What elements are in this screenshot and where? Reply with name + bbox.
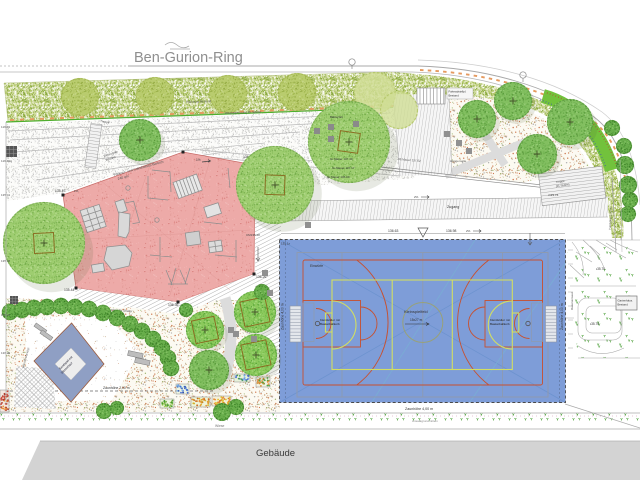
svg-text:CM135.28: CM135.28 [246, 233, 260, 237]
svg-text:Turnhöhe 2,00 m: Turnhöhe 2,00 m [608, 207, 613, 230]
svg-text:Bestand: Bestand [618, 303, 629, 307]
svg-text:135.47: 135.47 [55, 189, 65, 193]
svg-text:Zaunhöhe 4,00 m: Zaunhöhe 4,00 m [281, 303, 285, 330]
svg-text:Wiese: Wiese [215, 424, 225, 428]
svg-text:Ben-Gurion-Ring: Ben-Gurion-Ring [134, 50, 243, 66]
svg-text:Basketballkorb: Basketballkorb [320, 322, 340, 326]
svg-text:Blätterfall: Blätterfall [330, 115, 343, 119]
svg-text:Gr.Mauer 137.17: Gr.Mauer 137.17 [332, 166, 355, 170]
svg-text:Zaunhöhe 4,00 m: Zaunhöhe 4,00 m [560, 303, 564, 330]
svg-text:Zaunhöhe 4,00 m: Zaunhöhe 4,00 m [405, 407, 433, 411]
svg-text:Gr.Mauer 137.40: Gr.Mauer 137.40 [330, 157, 353, 161]
svg-text:Ansaatgrundmitteln: Ansaatgrundmitteln [412, 419, 438, 423]
svg-text:Gebäude: Gebäude [256, 448, 295, 459]
svg-text:Bestand: Bestand [449, 94, 460, 98]
svg-text:15x27 m: 15x27 m [410, 318, 423, 322]
svg-text:Rasenansaat: Rasenansaat [570, 292, 574, 310]
svg-text:Einwürfe: Einwürfe [310, 264, 323, 268]
svg-text:Hängematte: Hängematte [450, 159, 467, 163]
svg-text:▪35.76: ▪35.76 [596, 267, 605, 271]
svg-text:116.40A: 116.40A [1, 159, 12, 163]
svg-text:Gr.Mauer 136.99: Gr.Mauer 136.99 [327, 175, 350, 179]
svg-text:2%: 2% [414, 195, 419, 199]
svg-text:2%: 2% [466, 229, 471, 233]
svg-text:▪123.76: ▪123.76 [548, 193, 559, 197]
svg-text:Basketballkorb: Basketballkorb [490, 322, 510, 326]
svg-text:▪35.76: ▪35.76 [590, 322, 599, 326]
svg-text:Zaunhöhe 2,00 m: Zaunhöhe 2,00 m [103, 386, 130, 390]
svg-text:136.36: 136.36 [168, 303, 178, 307]
svg-text:136.63: 136.63 [388, 229, 398, 233]
svg-text:Kleinspielfeld: Kleinspielfeld [404, 309, 428, 314]
svg-text:Zugang: Zugang [447, 205, 459, 209]
svg-text:135.1x: 135.1x [281, 242, 291, 246]
svg-text:1%: 1% [196, 158, 201, 162]
svg-text:136.98: 136.98 [446, 229, 456, 233]
svg-text:116.46: 116.46 [1, 125, 10, 129]
svg-text:1%: 1% [74, 189, 79, 193]
